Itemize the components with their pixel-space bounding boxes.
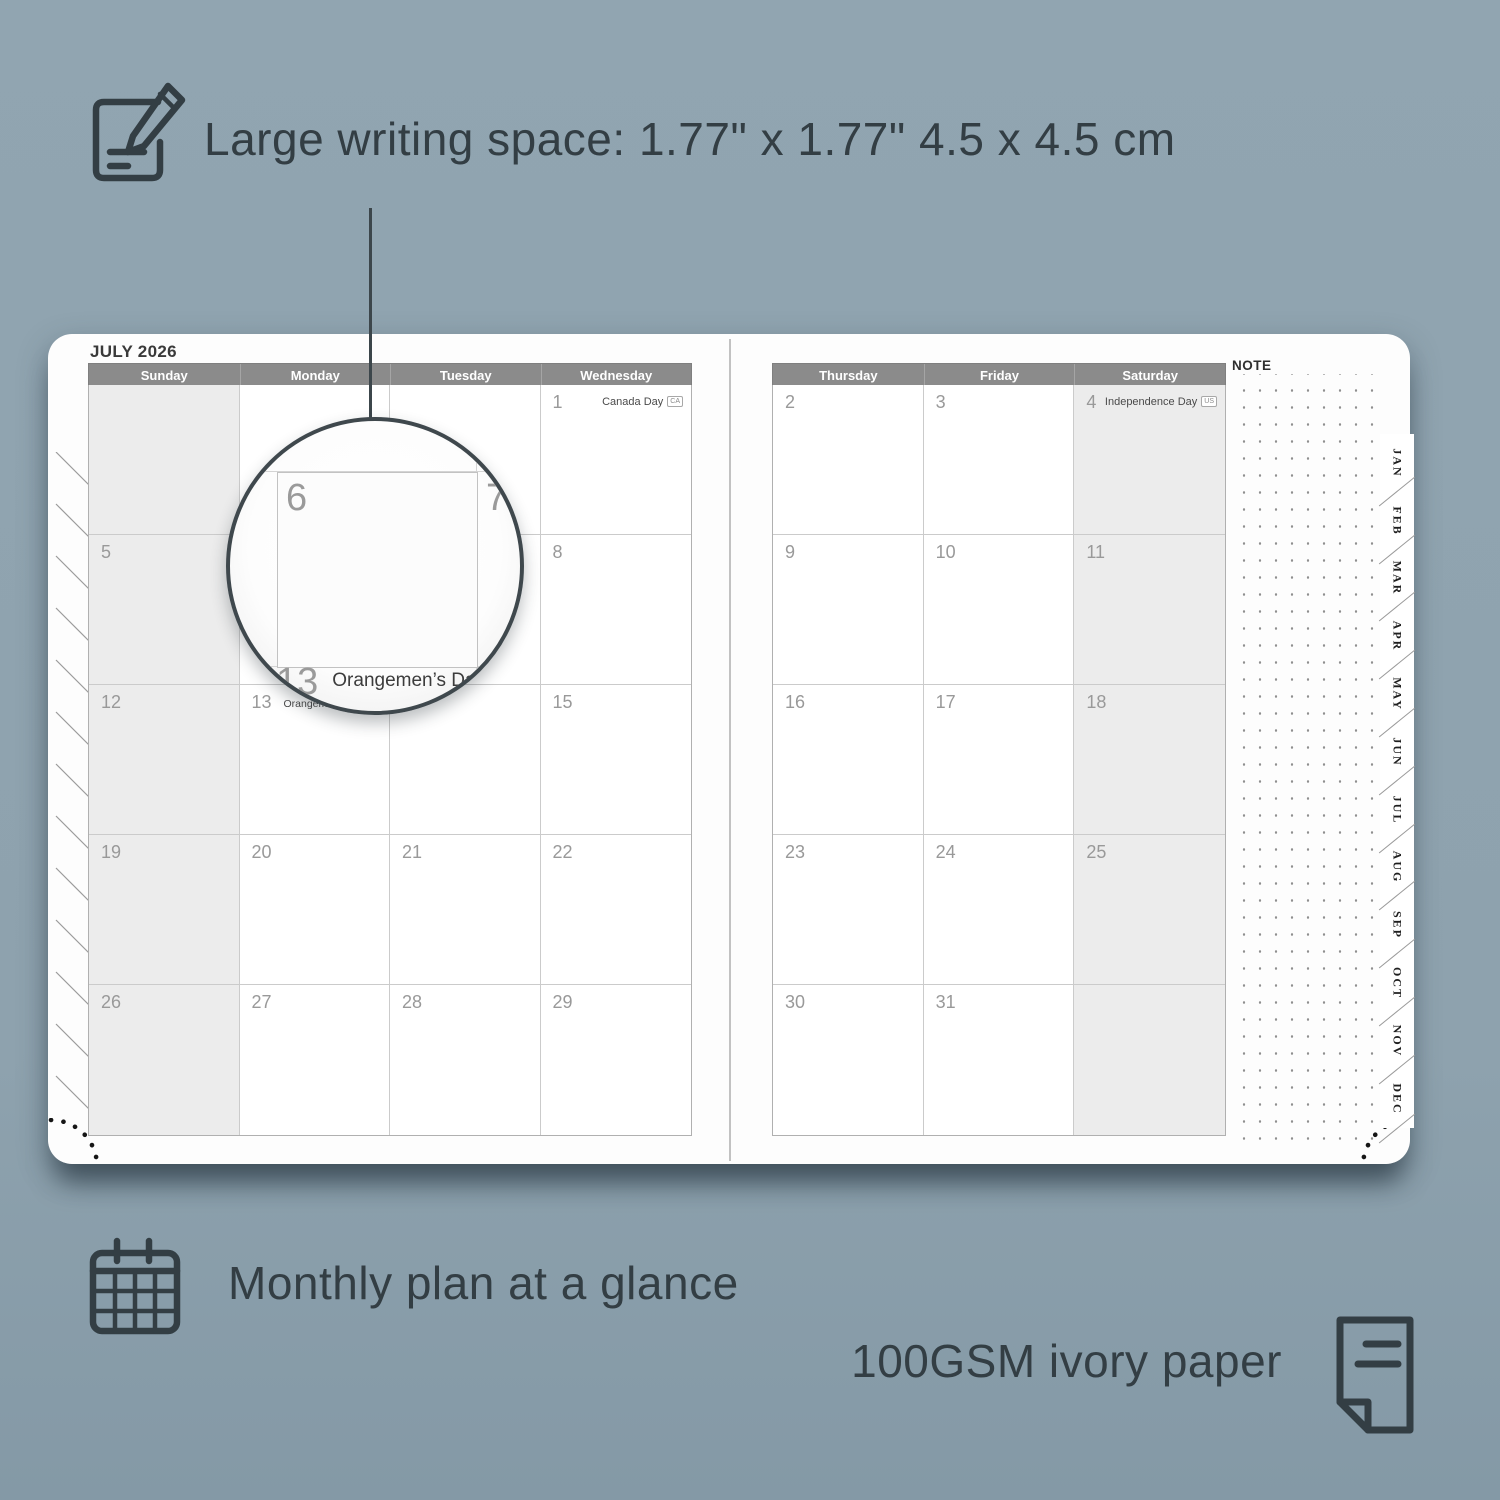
- calendar-cell: 31: [924, 985, 1075, 1135]
- day-number: 4: [1086, 392, 1096, 413]
- calendar-cell: 11: [1074, 535, 1225, 685]
- calendar-cell: 30: [773, 985, 924, 1135]
- month-tab-jan: JAN: [1380, 434, 1414, 492]
- magnifier-circle: 6 7 13Orangemen’s Day (n.i.)UK: [226, 417, 524, 715]
- day-number: 22: [553, 842, 573, 863]
- day-number: 26: [101, 992, 121, 1013]
- day-number: 1: [553, 392, 563, 413]
- writing-space-caption: Large writing space: 1.77" x 1.77" 4.5 x…: [204, 112, 1176, 166]
- day-number: 2: [785, 392, 795, 413]
- calendar-cell: 18: [1074, 685, 1225, 835]
- calendar-grid-right: 234Independence DayUS9101116171823242530…: [772, 385, 1226, 1136]
- monthly-plan-caption: Monthly plan at a glance: [228, 1256, 739, 1310]
- weekday-header: Friday: [924, 364, 1075, 386]
- calendar-cell: 1Canada DayCA: [541, 385, 692, 535]
- month-tab-strip: JANFEBMARAPRMAYJUNJULAUGSEPOCTNOVDEC: [1380, 434, 1414, 1128]
- day-number: 20: [252, 842, 272, 863]
- country-flag-badge: CA: [667, 396, 683, 407]
- product-image: { "colors":{"background":"#8ea2ae","ink"…: [0, 0, 1500, 1500]
- page-gutter-line: [729, 339, 731, 1161]
- calendar-cell: 16: [773, 685, 924, 835]
- month-title: JULY 2026: [90, 342, 177, 362]
- day-number: 30: [785, 992, 805, 1013]
- weekday-header: Thursday: [773, 364, 924, 386]
- calendar-cell: 28: [390, 985, 541, 1135]
- month-tab-label: MAY: [1390, 677, 1405, 711]
- calendar-cell: 9: [773, 535, 924, 685]
- stitch-arc-left: [3, 1118, 99, 1214]
- calendar-cell: 27: [240, 985, 391, 1135]
- note-dot-grid: [1230, 374, 1376, 1152]
- weekday-header: Wednesday: [541, 364, 692, 386]
- holiday-entry: Independence DayUS: [1105, 396, 1217, 408]
- day-number: 19: [101, 842, 121, 863]
- month-tab-apr: APR: [1380, 607, 1414, 665]
- month-tab-jun: JUN: [1380, 723, 1414, 781]
- magnified-day-number: 7: [486, 477, 507, 520]
- month-tab-feb: FEB: [1380, 492, 1414, 550]
- weekday-header: Saturday: [1074, 364, 1225, 386]
- calendar-cell: 19: [89, 835, 240, 985]
- month-tab-label: JUL: [1390, 795, 1405, 824]
- day-number: 12: [101, 692, 121, 713]
- weekday-header: Tuesday: [390, 364, 541, 386]
- calendar-grid-icon: [85, 1237, 185, 1337]
- day-number: 9: [785, 542, 795, 563]
- month-tab-oct: OCT: [1380, 954, 1414, 1012]
- paper-caption: 100GSM ivory paper: [851, 1334, 1282, 1388]
- day-number: 31: [936, 992, 956, 1013]
- month-tab-label: APR: [1390, 621, 1405, 652]
- day-number: 24: [936, 842, 956, 863]
- month-tab-label: JUN: [1390, 737, 1405, 766]
- month-tab-sep: SEP: [1380, 896, 1414, 954]
- day-number: 21: [402, 842, 422, 863]
- paper-sheet-icon: [1322, 1314, 1422, 1436]
- callout-pointer-line: [369, 208, 372, 423]
- month-tab-dec: DEC: [1380, 1070, 1414, 1128]
- magnified-holiday-row: 13Orangemen’s Day (n.i.)UK: [276, 661, 506, 704]
- calendar-cell: 4Independence DayUS: [1074, 385, 1225, 535]
- day-number: 10: [936, 542, 956, 563]
- day-number: 13: [252, 692, 272, 713]
- weekday-header: Monday: [240, 364, 391, 386]
- month-tab-label: AUG: [1390, 851, 1405, 884]
- calendar-cell: 26: [89, 985, 240, 1135]
- day-number: 27: [252, 992, 272, 1013]
- calendar-cell: [89, 385, 240, 535]
- stitch-arc-right: [1361, 1118, 1457, 1214]
- month-tab-nov: NOV: [1380, 1012, 1414, 1070]
- calendar-cell: 12: [89, 685, 240, 835]
- month-tab-aug: AUG: [1380, 839, 1414, 897]
- day-number: 5: [101, 542, 111, 563]
- month-tab-label: FEB: [1390, 506, 1405, 535]
- month-tab-label: JAN: [1390, 448, 1405, 477]
- month-tab-mar: MAR: [1380, 550, 1414, 608]
- month-tab-label: SEP: [1390, 911, 1405, 939]
- weekday-header: Sunday: [89, 364, 240, 386]
- note-label: NOTE: [1232, 358, 1272, 373]
- calendar-cell: 29: [541, 985, 692, 1135]
- calendar-cell: 15: [541, 685, 692, 835]
- holiday-entry: Canada DayCA: [602, 396, 683, 408]
- day-number: 17: [936, 692, 956, 713]
- calendar-cell: 8: [541, 535, 692, 685]
- calendar-cell: 5: [89, 535, 240, 685]
- calendar-cell: 17: [924, 685, 1075, 835]
- country-flag-badge: US: [1201, 396, 1217, 407]
- calendar-cell: 10: [924, 535, 1075, 685]
- day-number: 29: [553, 992, 573, 1013]
- day-number: 11: [1086, 542, 1105, 563]
- planner-page-spread: JULY 2026 SundayMondayTuesdayWednesday T…: [48, 334, 1410, 1164]
- calendar-cell: 22: [541, 835, 692, 985]
- holiday-label: Independence Day: [1105, 396, 1197, 408]
- magnified-day-number: 13: [276, 661, 318, 703]
- day-number: 15: [553, 692, 573, 713]
- calendar-cell: 23: [773, 835, 924, 985]
- writing-space-outline: [277, 472, 478, 668]
- magnified-day-number: 6: [286, 477, 307, 520]
- month-tab-label: DEC: [1390, 1083, 1405, 1114]
- pencil-note-icon: [88, 80, 190, 188]
- day-number: 28: [402, 992, 422, 1013]
- day-number: 3: [936, 392, 946, 413]
- day-number: 25: [1086, 842, 1106, 863]
- calendar-cell: 24: [924, 835, 1075, 985]
- day-number: 16: [785, 692, 805, 713]
- weekday-header-row-right: ThursdayFridaySaturday: [772, 363, 1226, 387]
- calendar-cell: 25: [1074, 835, 1225, 985]
- calendar-cell: 21: [390, 835, 541, 985]
- weekday-header-row-left: SundayMondayTuesdayWednesday: [88, 363, 692, 387]
- month-tab-label: MAR: [1390, 561, 1405, 596]
- month-tab-label: NOV: [1390, 1025, 1405, 1058]
- calendar-cell: [1074, 985, 1225, 1135]
- day-number: 23: [785, 842, 805, 863]
- holiday-label: Canada Day: [602, 396, 663, 408]
- magnified-holiday-label: Orangemen’s Day (n.i.): [332, 670, 524, 691]
- month-tab-label: OCT: [1390, 967, 1405, 999]
- day-number: 18: [1086, 692, 1106, 713]
- day-number: 8: [553, 542, 563, 563]
- calendar-cell: 20: [240, 835, 391, 985]
- calendar-cell: 3: [924, 385, 1075, 535]
- month-tab-jul: JUL: [1380, 781, 1414, 839]
- month-tab-may: MAY: [1380, 665, 1414, 723]
- calendar-cell: 2: [773, 385, 924, 535]
